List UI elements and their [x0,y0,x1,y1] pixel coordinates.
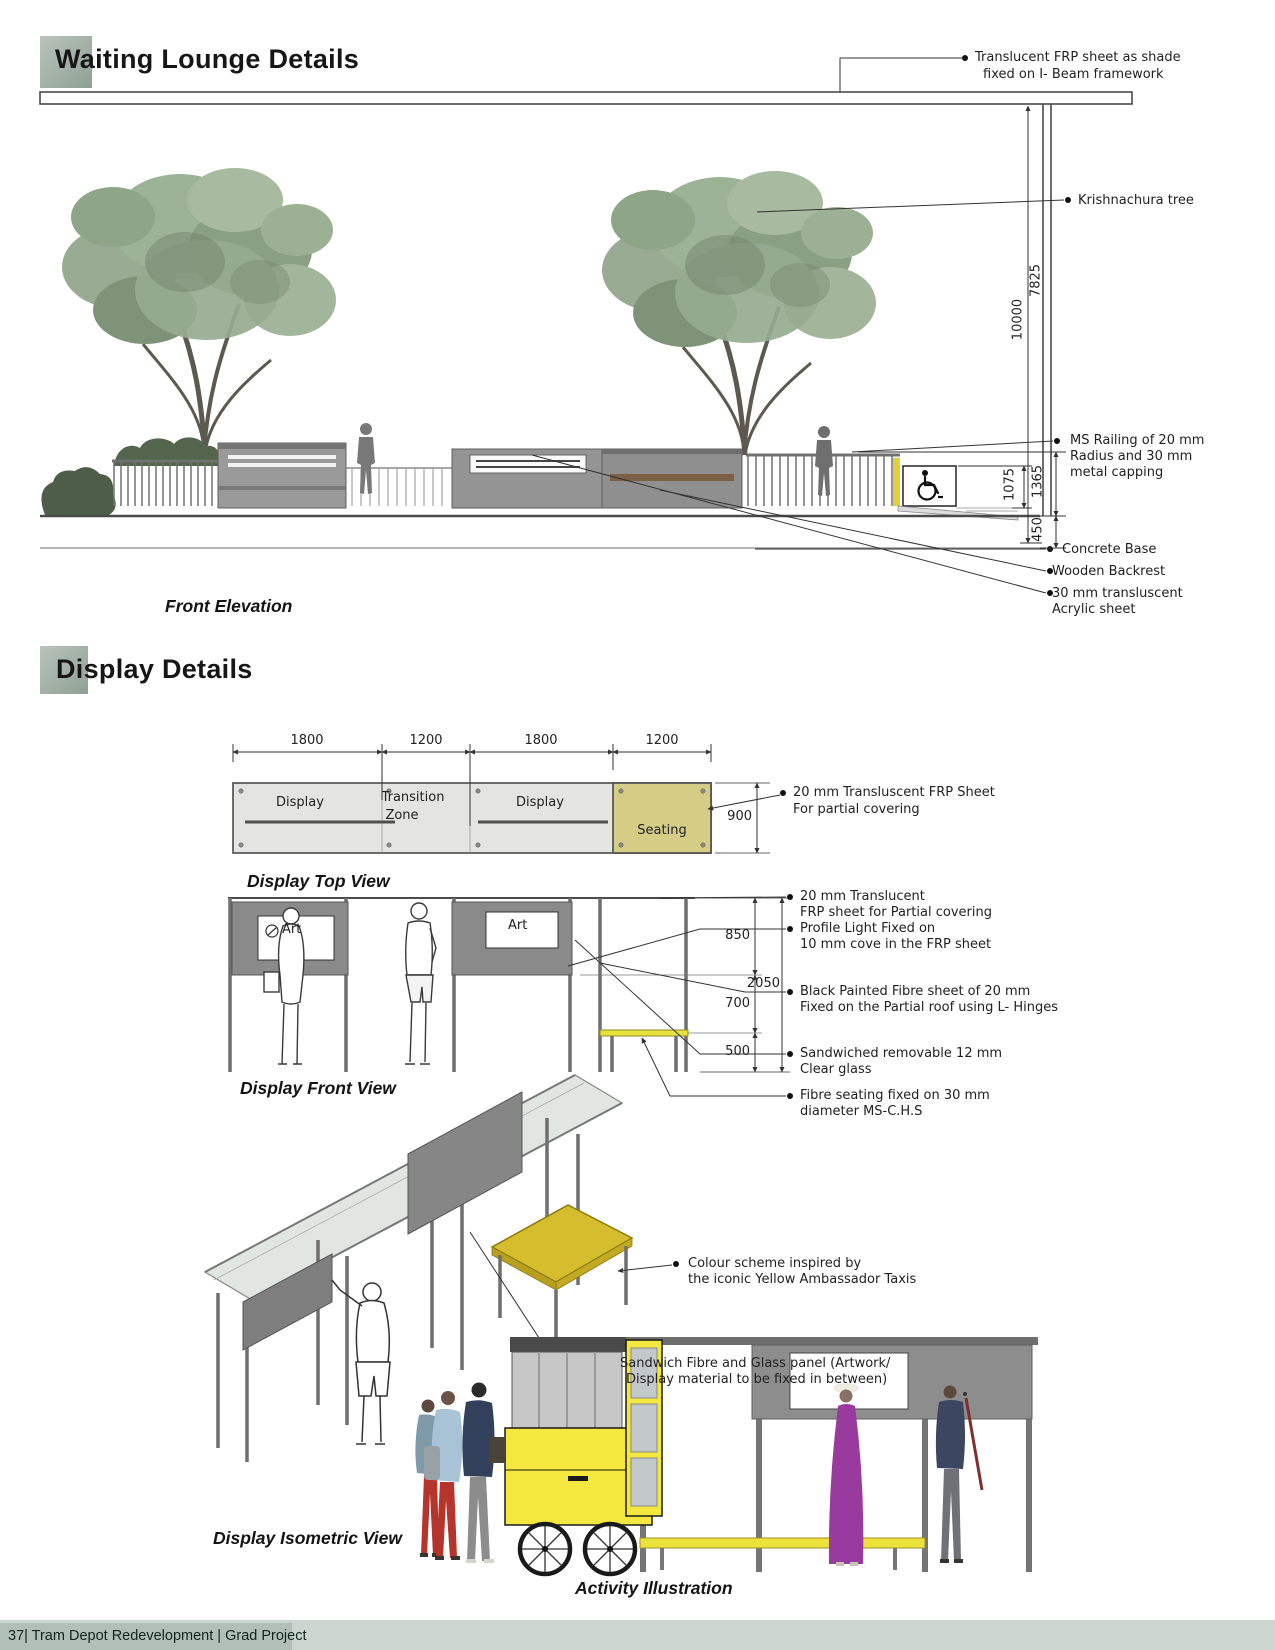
annotation-acrylic-line2: Acrylic sheet [1052,602,1135,618]
caption-display-isometric-view: Display Isometric View [213,1528,402,1549]
zone-label-seating: Seating [617,823,707,839]
annotation-frp-sheet-line1: 20 mm Transluscent FRP Sheet [793,785,995,801]
dim-1075: 1075 [1003,455,1018,515]
annotation-frp-sheet-line2: For partial covering [793,802,920,818]
annotation-fibre-seating-line1: Fibre seating fixed on 30 mm [800,1088,990,1104]
caption-front-elevation: Front Elevation [165,596,292,617]
dim-1800-a: 1800 [277,733,337,748]
caption-activity-illustration: Activity Illustration [575,1578,733,1599]
art-label-b: Art [508,918,527,934]
person-outline-isometric [332,1280,390,1444]
dim-7825: 7825 [1029,251,1044,311]
annotation-profile-light-line2: 10 mm cove in the FRP sheet [800,937,991,953]
annotation-acrylic-line1: 30 mm transluscent [1052,586,1183,602]
annotation-sandwich-panel-line2: Display material to be fixed in between) [626,1372,887,1388]
annotation-colour-scheme-line1: Colour scheme inspired by [688,1256,861,1272]
annotation-clear-glass-line2: Clear glass [800,1062,872,1078]
pedestrians [415,1383,506,1562]
bench-modules [218,443,742,508]
dim-10000: 10000 [1011,290,1026,350]
accessible-parking-sign [893,458,956,506]
zone-label-display-b: Display [495,795,585,811]
annotation-concrete-base: Concrete Base [1062,542,1156,558]
cart-wheel [520,1524,570,1574]
footer-text: 37| Tram Depot Redevelopment | Grad Proj… [8,1628,306,1644]
annotation-ms-railing-line1: MS Railing of 20 mm [1070,433,1204,449]
annotation-ms-railing-line2: Radius and 30 mm [1070,449,1192,465]
caption-display-front-view: Display Front View [240,1078,396,1099]
annotation-colour-scheme-line2: the iconic Yellow Ambassador Taxis [688,1272,916,1288]
railing-left [112,461,218,506]
person-silhouette [357,423,375,494]
page-title: Waiting Lounge Details [55,44,359,75]
annotation-frp-shade-line2: fixed on I- Beam framework [983,67,1164,83]
cart-wheel [585,1524,635,1574]
dim-900: 900 [714,809,752,824]
annotation-fibre-sheet-line1: Black Painted Fibre sheet of 20 mm [800,984,1030,1000]
front-elevation-drawing [40,55,1132,596]
annotation-sandwich-panel-line1: Sandwich Fibre and Glass panel (Artwork/ [620,1356,890,1372]
annotation-clear-glass-line1: Sandwiched removable 12 mm [800,1046,1002,1062]
dim-2050: 2050 [740,976,780,991]
tree-icon [62,168,876,455]
annotation-wooden-backrest: Wooden Backrest [1052,564,1165,580]
annotation-ms-railing-line3: metal capping [1070,465,1163,481]
dim-500: 500 [714,1044,750,1059]
annotation-krishnachura-tree: Krishnachura tree [1078,193,1194,209]
ramp [898,506,1018,520]
dim-850: 850 [714,928,750,943]
portfolio-page: Waiting Lounge Details Translucent FRP s… [0,0,1275,1650]
caption-display-top-view: Display Top View [247,871,390,892]
zone-label-display-a: Display [260,795,340,811]
annotation-profile-light-line1: Profile Light Fixed on [800,921,935,937]
dim-700: 700 [714,996,750,1011]
person-outline-man [405,903,436,1064]
dim-1200-a: 1200 [396,733,456,748]
dim-450: 450 [1031,500,1046,560]
annotation-fibre-sheet-line2: Fixed on the Partial roof using L- Hinge… [800,1000,1058,1016]
annotation-translucent-line2: FRP sheet for Partial covering [800,905,992,921]
dim-1200-b: 1200 [632,733,692,748]
annotation-fibre-seating-line2: diameter MS-C.H.S [800,1104,922,1120]
annotation-translucent-line1: 20 mm Translucent [800,889,925,905]
yellow-seat [492,1205,632,1352]
person-silhouette [815,426,833,496]
section-title: Display Details [56,654,253,685]
annotation-frp-shade-line1: Translucent FRP sheet as shade [975,50,1181,66]
zone-label-transition-line1: Transition [368,790,458,806]
zone-label-transition-line2: Zone [362,808,442,824]
art-label-a: Art [282,922,301,938]
dim-1800-b: 1800 [511,733,571,748]
